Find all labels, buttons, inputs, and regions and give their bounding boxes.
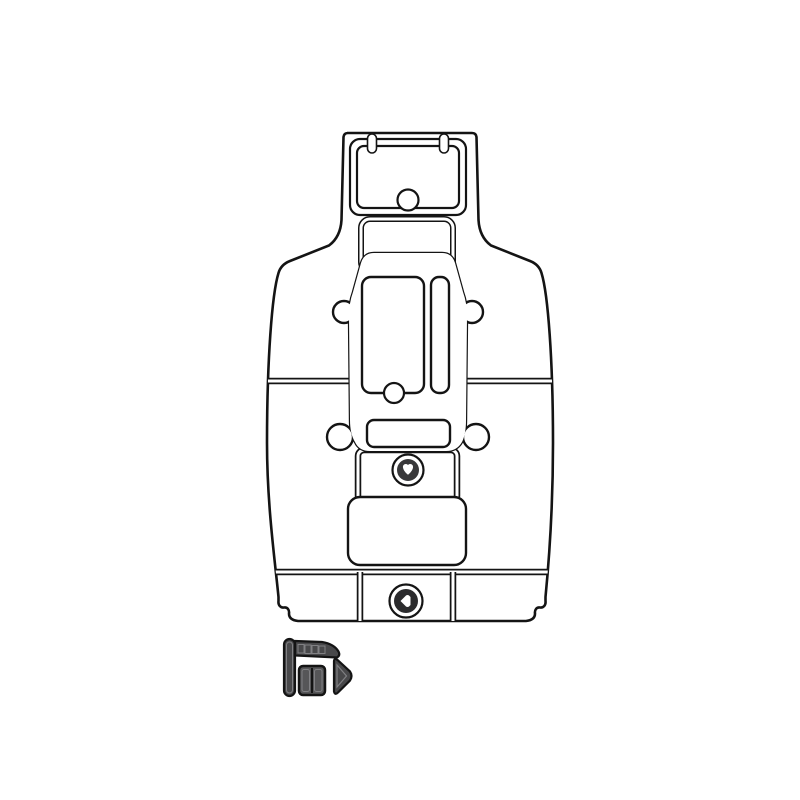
bow-keyhole-notch-right: [440, 134, 449, 153]
cutout-bulge-bottom-right: [463, 424, 489, 450]
cutout-bulge-bottom-left: [327, 424, 353, 450]
medallion-bottom: [390, 585, 423, 618]
product-image: [0, 0, 800, 800]
bow-keyhole-notch-left: [368, 134, 377, 153]
medallion-top: [393, 455, 424, 486]
bow-pad-hole: [398, 190, 419, 211]
hatch-cutout: [348, 497, 466, 565]
boat-deck-pad-illustration: [0, 0, 800, 800]
accessory-left-bar: [284, 639, 295, 696]
console-pad-circle-notch: [384, 383, 404, 403]
